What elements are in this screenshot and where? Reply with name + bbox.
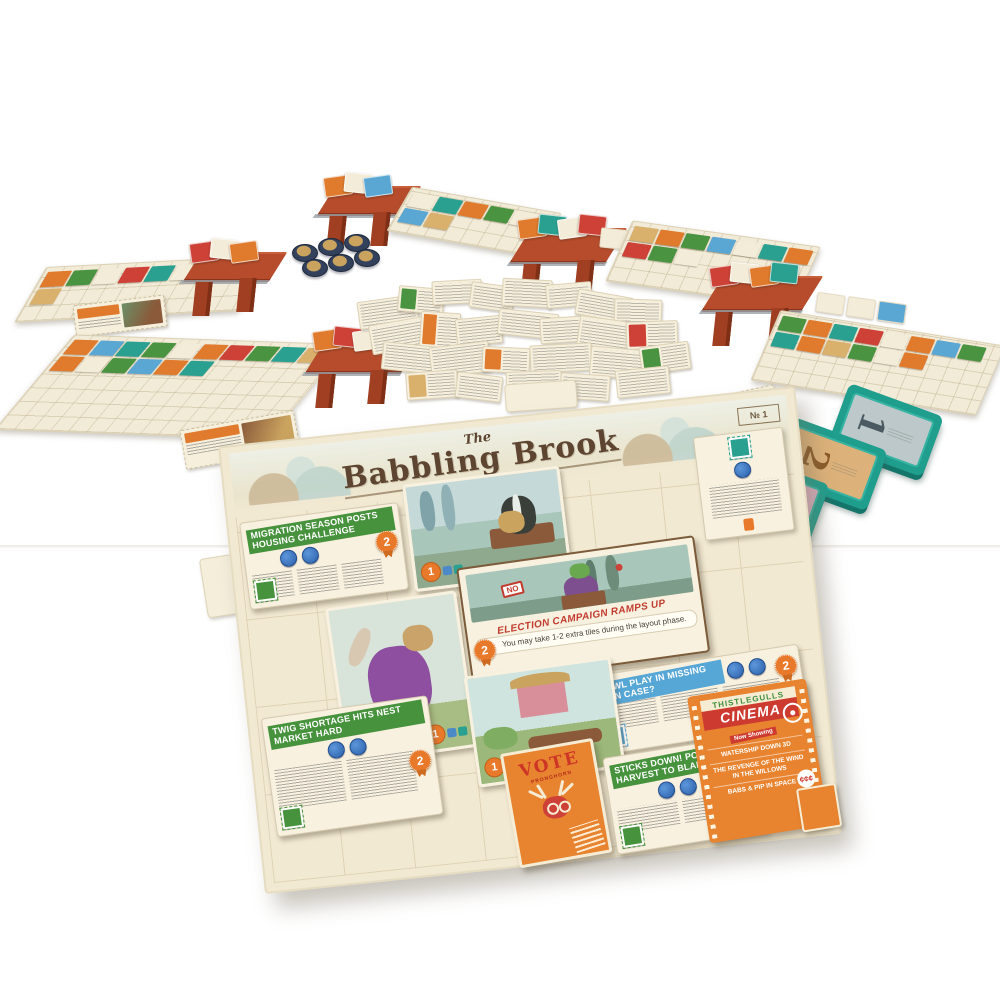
- article-text: [428, 372, 456, 396]
- central-board: The Babbling Brook № 1 MIGRATION SEASON …: [218, 386, 842, 894]
- mini-card: [680, 233, 710, 251]
- stand-leg: [367, 370, 388, 404]
- spire-art: [604, 554, 621, 591]
- mini-card: [880, 332, 910, 350]
- card-heap: [332, 176, 392, 196]
- blank-card: [504, 380, 578, 413]
- influence-token: [726, 660, 745, 679]
- issue-number-box: № 1: [737, 404, 781, 426]
- influence-token: [657, 780, 676, 799]
- green-stamp-icon: [280, 806, 304, 830]
- mini-card: [629, 226, 659, 244]
- tabletop-photo: { "scene": { "description": "Product pho…: [0, 0, 1000, 1000]
- mini-card: [363, 174, 394, 198]
- mini-card: [423, 212, 455, 230]
- blue-tag-icon: [442, 565, 452, 575]
- article-text: [458, 375, 500, 400]
- coin-token: [328, 254, 354, 272]
- ad-card-vote-poster: VOTE PRONGHORN: [500, 738, 613, 869]
- badge-number: 1: [420, 561, 442, 583]
- mini-card: [876, 300, 907, 324]
- mini-card: [815, 292, 846, 316]
- spire-art: [418, 490, 437, 531]
- mini-card: [847, 344, 877, 362]
- mini-card: [796, 336, 826, 354]
- film-reel-icon: [781, 701, 804, 724]
- mini-card: [622, 242, 652, 260]
- article-text: [504, 281, 549, 305]
- mini-card: [854, 328, 884, 346]
- article-text: [618, 369, 668, 396]
- green-stamp-icon: [620, 824, 644, 848]
- article-text: [617, 301, 660, 322]
- mini-card: [769, 262, 799, 285]
- tile-text: [886, 427, 913, 443]
- influence-token: [279, 549, 298, 568]
- mini-card: [673, 249, 703, 267]
- card-photo: [422, 314, 437, 345]
- mini-card: [229, 240, 260, 264]
- mini-card: [648, 246, 678, 264]
- article-text: [458, 318, 500, 344]
- mini-card: [957, 344, 987, 362]
- card-photo: [400, 288, 417, 309]
- coin-token: [354, 249, 380, 267]
- tile-text: [830, 461, 857, 477]
- scatter-card: [481, 346, 530, 374]
- card-photo: [408, 374, 427, 397]
- scatter-card: [405, 369, 459, 401]
- green-stamp-icon: [254, 579, 278, 603]
- mini-card: [829, 324, 859, 342]
- stand-leg: [236, 278, 257, 312]
- coffee-glyph-icon: [743, 518, 754, 531]
- stand-leg: [192, 282, 213, 316]
- headline-card-twig-shortage: TWIG SHORTAGE HITS NEST MARKET HARD 2: [261, 695, 444, 837]
- stand-leg: [315, 374, 336, 408]
- card-photo: [122, 299, 163, 328]
- no-sign: NO: [500, 580, 524, 598]
- influence-token: [733, 460, 752, 479]
- teal-stamp-icon: [728, 436, 751, 459]
- mini-card: [655, 229, 685, 247]
- spire-art: [439, 484, 457, 531]
- coin-token: [302, 259, 328, 277]
- scatter-card: [615, 365, 672, 398]
- apple-art: [615, 563, 623, 571]
- mini-card: [706, 237, 736, 255]
- mini-card: [803, 320, 833, 338]
- influence-token: [301, 546, 320, 565]
- card-heap: [198, 242, 258, 262]
- blue-tag-icon: [447, 727, 457, 737]
- influence-token: [679, 777, 698, 796]
- scatter-card: [529, 342, 592, 373]
- mini-card: [29, 288, 62, 305]
- article-strip-card: [693, 427, 795, 541]
- card-heap: [526, 218, 606, 238]
- mini-card: [770, 332, 800, 350]
- mini-card: [758, 244, 788, 262]
- stand-leg: [712, 312, 733, 346]
- teal-tag-icon: [458, 726, 468, 736]
- article-text: [542, 319, 579, 341]
- mini-card: [846, 296, 877, 320]
- scatter-card: [455, 371, 504, 402]
- mini-card: [777, 316, 807, 334]
- influence-token: [747, 657, 766, 676]
- article-text: [532, 346, 589, 371]
- card-photo: [485, 349, 502, 370]
- mini-card: [732, 240, 762, 258]
- tile-number: 1: [851, 408, 891, 442]
- mini-card: [873, 348, 903, 366]
- mini-card: [899, 352, 929, 370]
- mini-card: [906, 336, 936, 354]
- bush-art: [482, 725, 519, 752]
- mini-card: [822, 340, 852, 358]
- card-photo: [629, 324, 647, 347]
- coin-token-cluster: [284, 232, 384, 282]
- mini-card: [931, 340, 961, 358]
- influence-token: [327, 740, 346, 759]
- influence-token: [348, 737, 367, 756]
- partial-ad-card: [796, 783, 842, 833]
- card-heap: [718, 266, 798, 286]
- article-text: [502, 350, 527, 371]
